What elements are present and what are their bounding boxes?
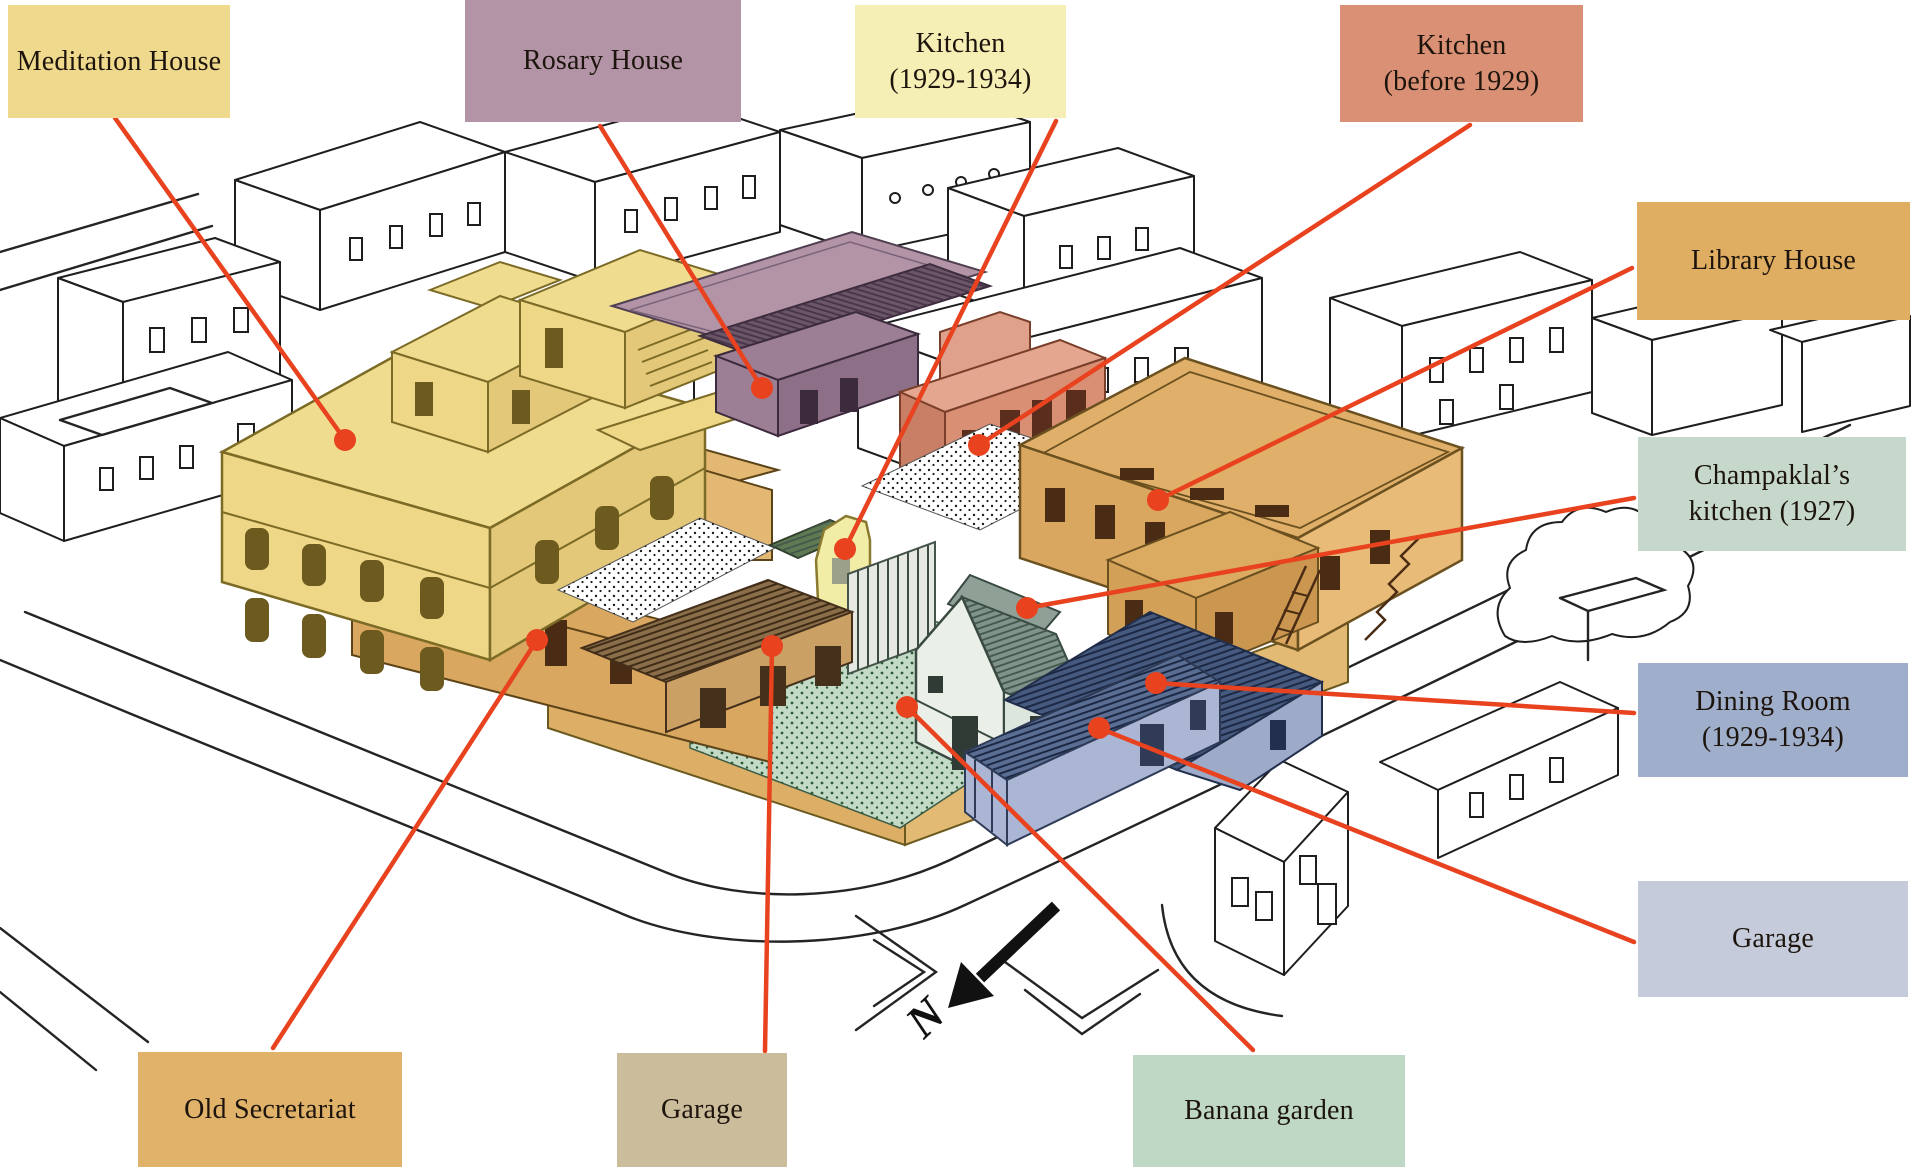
marker-garage-east [1088,717,1110,739]
label-text: Garage [1732,921,1814,957]
marker-library-house [1147,489,1169,511]
site-plan-drawing: N [0,0,1912,1175]
label-old-secretariat: Old Secretariat [138,1052,402,1167]
label-champaklals-kitchen: Champaklal’s kitchen (1927) [1638,437,1906,551]
label-text: Dining Room (1929-1934) [1695,684,1850,756]
label-library-house: Library House [1637,202,1910,320]
label-text: Library House [1691,243,1856,279]
site-plan-figure: N Meditation House Rosary House Kitchen … [0,0,1912,1175]
north-arrow: N [895,906,1056,1048]
label-text: Old Secretariat [184,1092,356,1128]
label-kitchen-before-1929: Kitchen (before 1929) [1340,5,1583,122]
marker-garage-south [761,635,783,657]
label-text: Garage [661,1092,743,1128]
marker-champaklal [1016,597,1038,619]
label-banana-garden: Banana garden [1133,1055,1405,1167]
label-garage-east: Garage [1638,881,1908,997]
label-kitchen-1929-1934: Kitchen (1929-1934) [855,5,1066,118]
label-text: Meditation House [17,44,222,80]
label-text: Kitchen (1929-1934) [889,26,1031,98]
label-text: Kitchen (before 1929) [1384,28,1540,100]
marker-banana-garden [896,696,918,718]
marker-kitchen-before [968,434,990,456]
label-garage-south: Garage [617,1053,787,1167]
marker-rosary-house [751,377,773,399]
marker-dining-room [1145,672,1167,694]
label-text: Rosary House [523,43,683,79]
label-meditation-house: Meditation House [8,5,230,118]
marker-kitchen-1929 [834,538,856,560]
label-dining-room: Dining Room (1929-1934) [1638,663,1908,777]
marker-old-secretariat [526,629,548,651]
label-rosary-house: Rosary House [465,0,741,122]
label-text: Banana garden [1184,1093,1354,1129]
marker-meditation-house [334,429,356,451]
label-text: Champaklal’s kitchen (1927) [1689,458,1856,530]
